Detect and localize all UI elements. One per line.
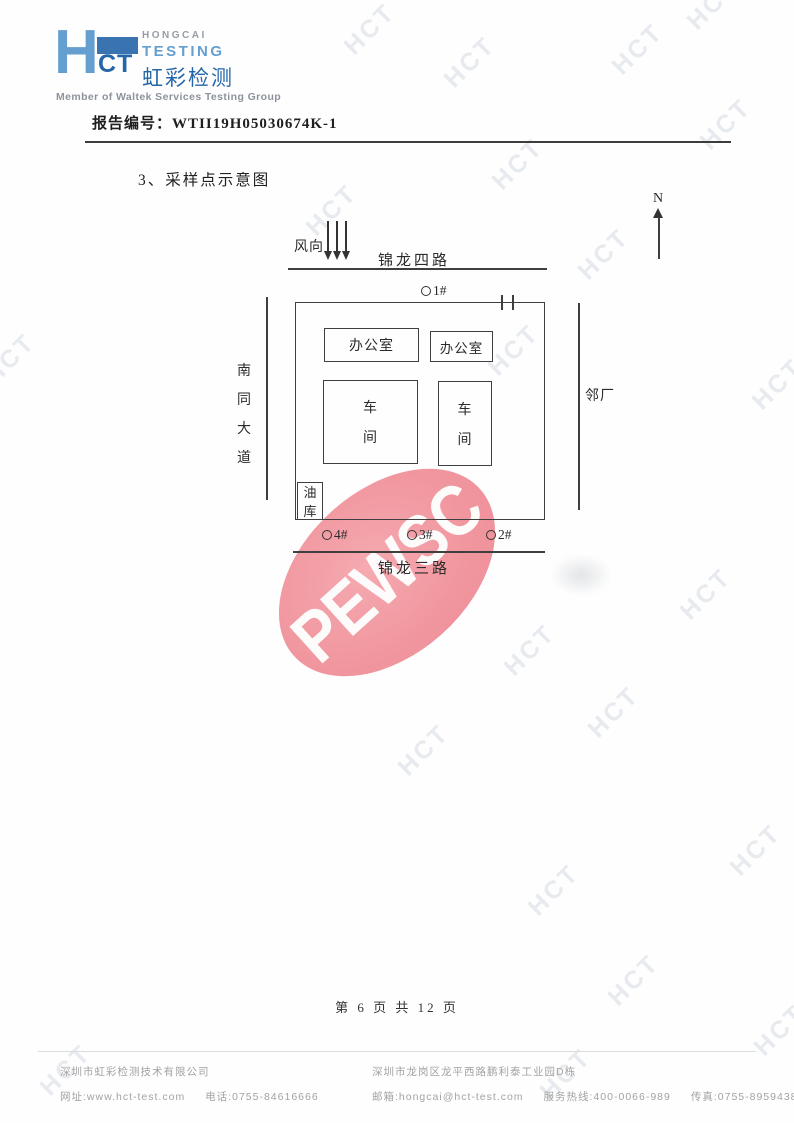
workshop-label: 车 间 bbox=[363, 397, 378, 447]
oil-depot-label: 油 库 bbox=[303, 482, 316, 520]
hct-watermark: HCT bbox=[607, 18, 670, 81]
road-left-char: 南 bbox=[237, 360, 252, 380]
oil-depot-box: 油 库 bbox=[297, 482, 323, 520]
report-page: HCTHCTHCTHCTHCTHCTHCTHCTHCTHCTHCTHCTHCTH… bbox=[0, 0, 794, 1123]
logo-name-en: HONGCAI bbox=[142, 30, 234, 41]
road-left-char: 大 bbox=[237, 418, 252, 438]
road-left-label: 南 同 大 道 bbox=[237, 360, 252, 467]
hct-watermark: HCT bbox=[499, 619, 562, 682]
hct-watermark: HCT bbox=[523, 859, 586, 922]
header-rule bbox=[85, 141, 731, 143]
office-label: 办公室 bbox=[349, 335, 394, 355]
sampling-point-label: 4# bbox=[334, 527, 348, 543]
logo-testing-en: TESTING bbox=[142, 43, 234, 60]
road-bottom-line bbox=[293, 551, 545, 553]
sampling-point-circle-icon bbox=[322, 530, 332, 540]
workshop-char: 车 bbox=[458, 399, 473, 419]
footer-address: 深圳市龙岗区龙平西路鹏利泰工业园D栋 bbox=[372, 1064, 576, 1079]
wind-label: 风向 bbox=[294, 236, 324, 256]
report-number-label: 报告编号： bbox=[92, 116, 172, 132]
sampling-point-circle-icon bbox=[486, 530, 496, 540]
sampling-point-1: 1# bbox=[421, 283, 447, 299]
workshop-char: 车 bbox=[363, 397, 378, 417]
hct-watermark: HCT bbox=[747, 353, 794, 416]
gate-tick bbox=[512, 295, 514, 310]
wind-arrow-icon bbox=[342, 221, 350, 260]
footer-phone: 电话:0755-84616666 bbox=[205, 1091, 319, 1103]
road-left-char: 同 bbox=[237, 389, 252, 409]
neighbor-label: 邻厂 bbox=[585, 385, 615, 405]
workshop-label: 车 间 bbox=[458, 399, 473, 449]
sampling-point-circle-icon bbox=[407, 530, 417, 540]
footer-hotline: 服务热线:400-0066-989 bbox=[544, 1091, 671, 1103]
hct-watermark: HCT bbox=[339, 0, 402, 61]
sampling-point-label: 2# bbox=[498, 527, 512, 543]
neighbor-line bbox=[578, 303, 580, 510]
page-number: 第 6 页 共 12 页 bbox=[0, 997, 794, 1016]
hct-watermark: HCT bbox=[695, 93, 758, 156]
gate-tick bbox=[501, 295, 503, 310]
hct-watermark: HCT bbox=[725, 819, 788, 882]
footer-contact-left: 网址:www.hct-test.com电话:0755-84616666 bbox=[60, 1089, 339, 1104]
hct-watermark: HCT bbox=[439, 31, 502, 94]
scan-smudge bbox=[538, 546, 624, 604]
wind-arrow-icon bbox=[333, 221, 341, 260]
north-arrow-shaft bbox=[658, 217, 660, 259]
hct-watermark: HCT bbox=[573, 223, 636, 286]
office-box-2: 办公室 bbox=[430, 331, 493, 362]
road-left-line bbox=[266, 297, 268, 500]
report-number-line: 报告编号：WTII19H05030674K-1 bbox=[92, 112, 338, 133]
hct-watermark: HCT bbox=[393, 719, 456, 782]
footer-website: 网址:www.hct-test.com bbox=[60, 1091, 185, 1103]
logo-ct-letters: CT bbox=[98, 52, 133, 77]
section-title: 3、采样点示意图 bbox=[138, 168, 270, 190]
hct-watermark: HCT bbox=[0, 328, 42, 391]
workshop-box-2: 车 间 bbox=[438, 381, 492, 466]
office-label: 办公室 bbox=[440, 337, 484, 357]
footer-fax: 传真:0755-89594380 bbox=[691, 1091, 794, 1103]
footer-contact-right: 邮箱:hongcai@hct-test.com服务热线:400-0066-989… bbox=[372, 1089, 794, 1104]
sampling-point-label: 3# bbox=[419, 527, 433, 543]
road-top-line bbox=[288, 268, 547, 270]
office-box-1: 办公室 bbox=[324, 328, 419, 362]
road-top-label: 锦龙四路 bbox=[378, 249, 450, 270]
logo-h-letter: H bbox=[54, 22, 99, 84]
road-bottom-label: 锦龙三路 bbox=[378, 557, 450, 578]
north-label: N bbox=[653, 191, 664, 207]
footer-email: 邮箱:hongcai@hct-test.com bbox=[372, 1091, 524, 1103]
logo-wordmark: HONGCAI TESTING 虹彩检测 bbox=[142, 30, 234, 92]
footer-rule bbox=[38, 1051, 756, 1052]
footer-company: 深圳市虹彩检测技术有限公司 bbox=[60, 1064, 210, 1079]
logo-member-line: Member of Waltek Services Testing Group bbox=[56, 91, 281, 103]
hct-watermark: HCT bbox=[682, 0, 745, 36]
hct-watermark: HCT bbox=[583, 681, 646, 744]
workshop-box-1: 车 间 bbox=[323, 380, 418, 464]
workshop-char: 间 bbox=[363, 427, 378, 447]
sampling-point-circle-icon bbox=[421, 286, 431, 296]
wind-arrow-icon bbox=[324, 221, 332, 260]
logo-name-cn: 虹彩检测 bbox=[142, 62, 234, 92]
sampling-point-label: 1# bbox=[433, 283, 447, 299]
oil-depot-char: 油 bbox=[303, 482, 316, 501]
road-left-char: 道 bbox=[237, 447, 252, 467]
sampling-point-2: 2# bbox=[486, 527, 512, 543]
report-number-value: WTII19H05030674K-1 bbox=[172, 116, 338, 132]
workshop-char: 间 bbox=[458, 429, 473, 449]
sampling-point-4: 4# bbox=[322, 527, 348, 543]
hct-watermark: HCT bbox=[675, 563, 738, 626]
sampling-point-3: 3# bbox=[407, 527, 433, 543]
oil-depot-char: 库 bbox=[303, 501, 316, 520]
